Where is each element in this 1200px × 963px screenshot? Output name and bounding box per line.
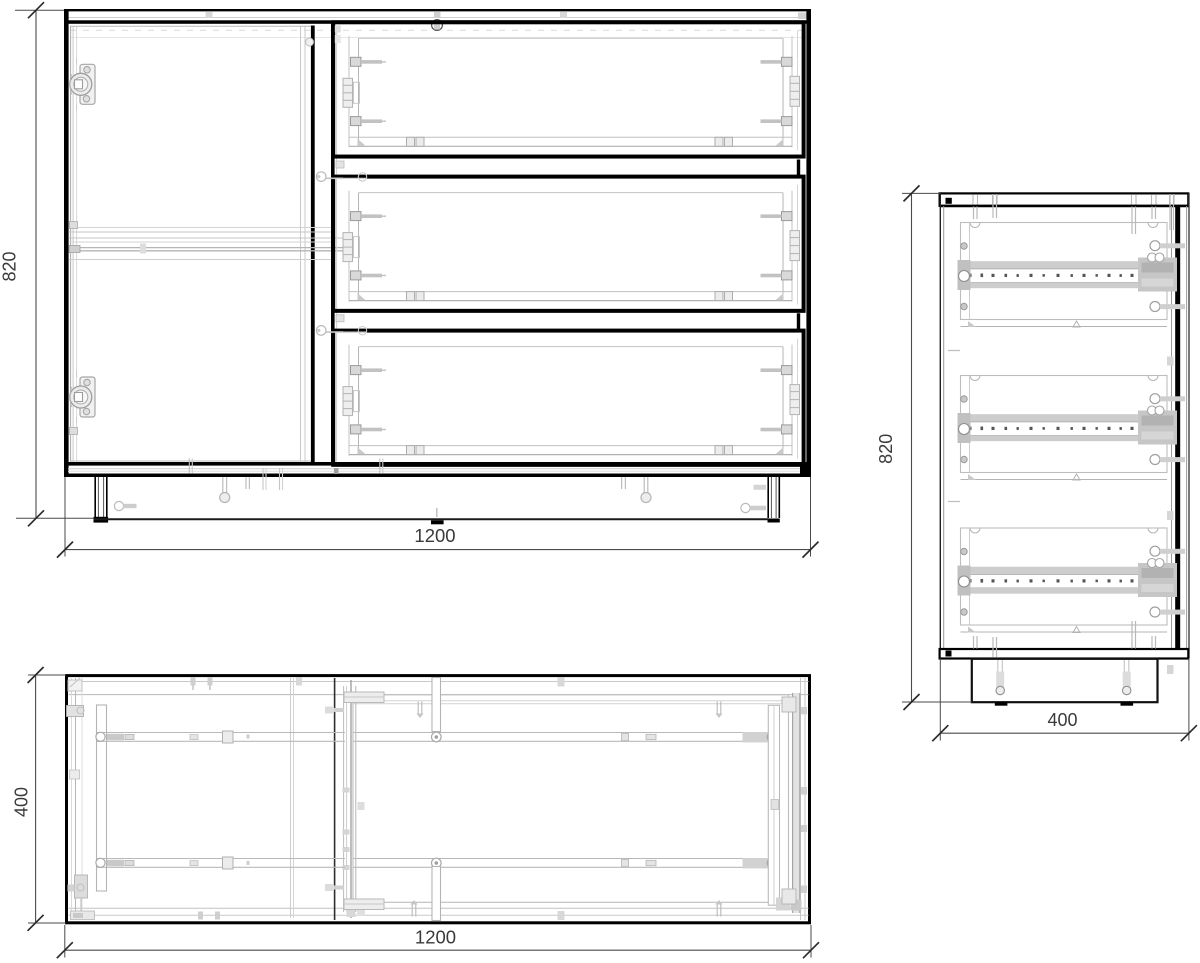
svg-text:400: 400 [11, 787, 31, 817]
svg-text:1200: 1200 [415, 927, 456, 948]
svg-text:820: 820 [876, 434, 896, 464]
svg-text:400: 400 [1047, 710, 1077, 730]
svg-text:1200: 1200 [414, 525, 455, 546]
svg-text:820: 820 [0, 251, 19, 281]
